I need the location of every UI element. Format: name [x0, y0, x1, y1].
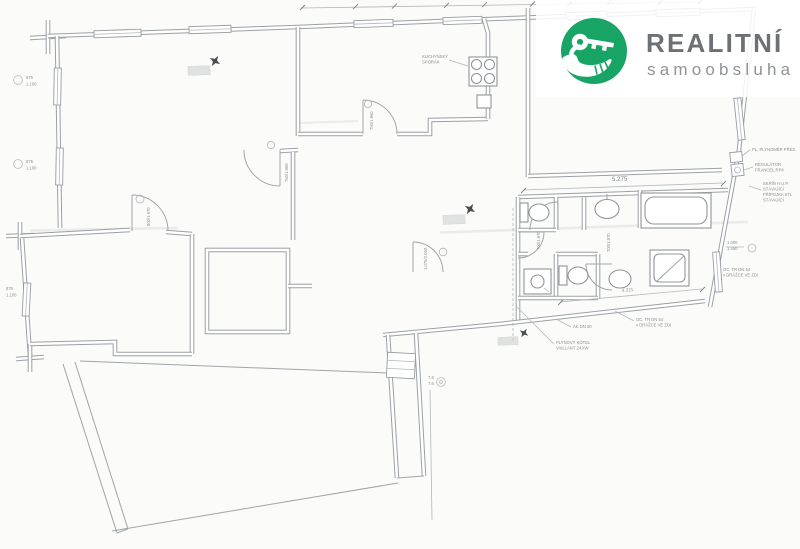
pipe-label: OC. TR DN 54 [636, 317, 664, 322]
shower [650, 250, 689, 286]
stove [469, 57, 497, 86]
svg-text:v DRÁŽCE VE ZDI: v DRÁŽCE VE ZDI [636, 323, 671, 328]
terrace-outline [63, 361, 432, 533]
door-dim: 700/1.970 [536, 231, 541, 250]
svg-text:7.6: 7.6 [428, 381, 434, 386]
regulator-label: REGULÁTOR [755, 162, 781, 167]
door-dim: 1.075/2.060 [423, 247, 428, 270]
pipe-label: OC. TR DN 54 [723, 267, 751, 272]
floor-plan-drawing: KUCHYŇSKÝ SPORÁK PLYNOVÝ KOTEL VAILLANT … [0, 0, 800, 549]
window [56, 148, 64, 185]
ak-label: AK DN 50 [573, 324, 592, 329]
svg-text:1.100: 1.100 [6, 293, 17, 298]
strip-dim: 7.5 [428, 375, 434, 380]
hup-label: SKŘÍŇ H.U.P. [763, 181, 789, 186]
window [22, 283, 31, 316]
svg-text:STÁVAJÍCÍ: STÁVAJÍCÍ [763, 198, 785, 203]
toilet-1 [520, 203, 549, 222]
window [386, 352, 415, 378]
window-dim: 875 [26, 75, 34, 80]
gas-meter-box [730, 151, 744, 176]
logo: REALITNÍ samoobsluha [536, 0, 800, 97]
dim-bath-top: 5.275 [612, 175, 628, 183]
window-dim: 875 [6, 286, 14, 291]
svg-text:SPORÁK: SPORÁK [422, 60, 440, 65]
bathtub [641, 193, 711, 228]
floor-plan-page: KUCHYŇSKÝ SPORÁK PLYNOVÝ KOTEL VAILLANT … [0, 0, 800, 549]
room-area-label [443, 215, 465, 225]
svg-text:FRANCEL RP4: FRANCEL RP4 [755, 168, 784, 173]
window [54, 68, 62, 105]
toilet-2 [559, 266, 588, 285]
svg-text:VAILLANT 24 kW: VAILLANT 24 kW [556, 346, 588, 351]
svg-text:1.100: 1.100 [26, 82, 37, 87]
svg-text:1.450: 1.450 [727, 246, 738, 251]
door-dim: 750/1.960 [284, 163, 289, 182]
svg-text:v DRÁŽCE VE ZDI: v DRÁŽCE VE ZDI [723, 273, 758, 278]
brand-name: REALITNÍ [646, 28, 783, 58]
door-dim: 700/1.970 [606, 233, 611, 252]
north-arrow-icon [517, 326, 531, 340]
dim-bath-bottom: 4.221 [622, 287, 634, 293]
window [94, 29, 141, 38]
window [443, 16, 482, 24]
door-dim: 800/1.970 [146, 207, 151, 226]
room-area-label [188, 66, 210, 76]
boiler-label: PLYNOVÝ KOTEL [556, 340, 591, 345]
room-area-label [498, 337, 518, 346]
gas-meter-label: PL. PLYNOMĚR PŘES. [752, 147, 796, 152]
hand-holding-key-icon [561, 18, 627, 84]
svg-text:1.100: 1.100 [26, 166, 37, 171]
door-dim: 750/1.960 [369, 111, 374, 130]
window-dim: 875 [26, 159, 34, 164]
door-living-room [244, 141, 280, 186]
door-closet [413, 242, 447, 272]
svg-text:PŘÍPOJKA STL: PŘÍPOJKA STL [763, 192, 793, 197]
dim-right: 1.000 [727, 240, 738, 245]
window [354, 19, 393, 27]
utility-sink [524, 269, 551, 294]
washbasin-2 [609, 270, 631, 288]
kitchen-sink [477, 95, 491, 108]
stove-label: KUCHYŇSKÝ [422, 54, 448, 59]
window [189, 25, 231, 33]
brand-tagline: samoobsluha [647, 60, 794, 79]
svg-text:STÁVAJÍCÍ: STÁVAJÍCÍ [763, 187, 785, 192]
washbasin-1 [595, 194, 619, 219]
